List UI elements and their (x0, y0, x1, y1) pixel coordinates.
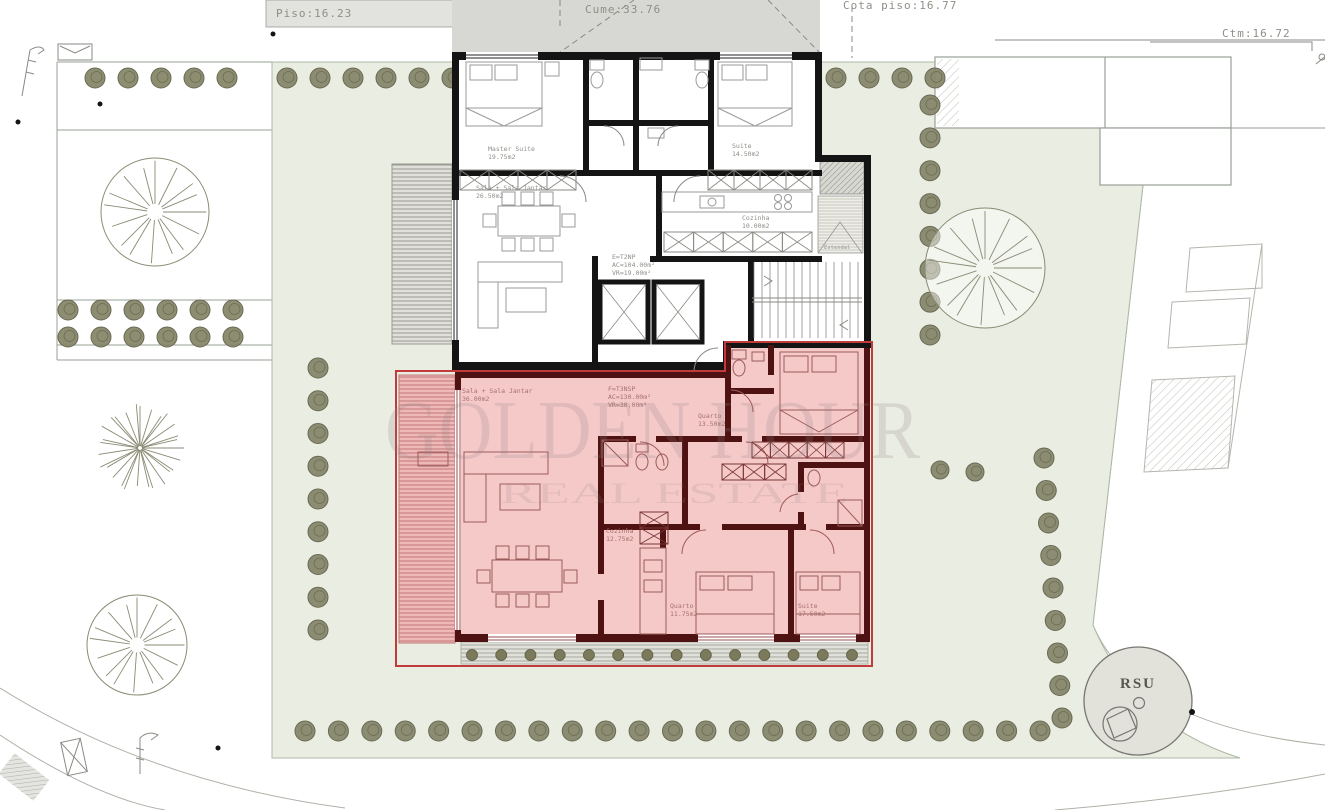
unit-e-vr: VR=19.00m² (612, 269, 651, 277)
tree-icon (920, 95, 940, 115)
tree-icon (308, 620, 328, 640)
tree-icon (429, 721, 449, 741)
watermark-line1: GOLDEN HOUR (385, 384, 920, 477)
site-plan-drawing: Piso:16.23 Cume:33.76 Cota piso:16.77 Ct… (0, 0, 1325, 810)
room-cozinha-e-name: Cozinha (742, 214, 769, 222)
room-estendal-name: Estendal (824, 245, 851, 251)
lamp-post-icon (22, 47, 44, 96)
tree-icon (343, 68, 363, 88)
tree-icon (91, 327, 111, 347)
tree-icon (920, 161, 940, 181)
tree-icon (308, 424, 328, 444)
roof-area (266, 0, 852, 58)
room-master-suite-name: Master Suite (488, 145, 535, 153)
tree-icon (830, 721, 850, 741)
tree-icon (124, 327, 144, 347)
large-tree-icon (101, 158, 209, 266)
crosswalk-hatch (0, 753, 49, 801)
tree-icon (295, 721, 315, 741)
tree-icon (308, 587, 328, 607)
parking-structures (1144, 244, 1262, 472)
room-sala-e-name: Sala + Sala Jantar (476, 184, 547, 192)
tree-icon (376, 68, 396, 88)
tree-icon (58, 300, 78, 320)
room-cozinha-f-area: 12.75m2 (606, 535, 633, 543)
tree-icon (629, 721, 649, 741)
tree-icon (763, 721, 783, 741)
tree-icon (892, 68, 912, 88)
tree-icon (1034, 448, 1054, 468)
unit-e-floorplan (392, 52, 871, 372)
tree-icon (930, 721, 950, 741)
tree-icon (190, 327, 210, 347)
tree-icon (925, 68, 945, 88)
tree-icon (308, 358, 328, 378)
tree-icon (85, 68, 105, 88)
tree-icon (217, 68, 237, 88)
tree-icon (157, 327, 177, 347)
tree-icon (663, 721, 683, 741)
unit-e-ac: AC=104.00m² (612, 261, 655, 269)
tree-icon (151, 68, 171, 88)
room-suite-name: Suite (732, 142, 752, 150)
tree-icon (596, 721, 616, 741)
tree-icon (796, 721, 816, 741)
tree-icon (223, 327, 243, 347)
tree-icon (931, 461, 949, 479)
tree-icon (308, 522, 328, 542)
tree-icon (223, 300, 243, 320)
tree-icon (58, 327, 78, 347)
tree-icon (308, 489, 328, 509)
tree-icon (462, 721, 482, 741)
tree-icon (409, 68, 429, 88)
tree-icon (118, 68, 138, 88)
tree-icon (277, 68, 297, 88)
tree-icon (310, 68, 330, 88)
tree-icon (729, 721, 749, 741)
tree-icon (859, 68, 879, 88)
room-master-suite-area: 19.75m2 (488, 153, 515, 161)
tree-icon (1052, 708, 1072, 728)
tree-icon (190, 300, 210, 320)
tree-icon (308, 456, 328, 476)
tree-icon (863, 721, 883, 741)
tree-icon (1043, 578, 1063, 598)
tree-icon (91, 300, 111, 320)
tree-icon (1045, 611, 1065, 631)
tree-icon (696, 721, 716, 741)
watermark-line2: REAL ESTATE (500, 477, 848, 510)
tree-icon (184, 68, 204, 88)
tree-icon (997, 721, 1017, 741)
tree-icon (1030, 721, 1050, 741)
room-suite-f-name: Suite (798, 602, 818, 610)
tree-icon (124, 300, 144, 320)
label-cota-piso: Cota piso:16.77 (843, 0, 957, 12)
mailbox-icon (58, 44, 92, 60)
tree-icon (395, 721, 415, 741)
tree-icon (920, 325, 940, 345)
large-tree-icon (98, 404, 184, 489)
room-sala-e-area: 26.50m2 (476, 192, 503, 200)
label-cume: Cume:33.76 (585, 3, 661, 16)
tree-icon (896, 721, 916, 741)
room-quarto2-name: Quarto (670, 602, 694, 610)
tree-icon (308, 555, 328, 575)
room-cozinha-e-area: 10.00m2 (742, 222, 769, 230)
tree-icon (328, 721, 348, 741)
room-quarto2-area: 11.75m2 (670, 610, 697, 618)
label-ctm: Ctm:16.72 (1222, 27, 1291, 40)
tree-icon (1041, 546, 1061, 566)
rsu-label: RSU (1120, 676, 1156, 692)
tree-icon (1048, 643, 1068, 663)
tree-icon (562, 721, 582, 741)
label-piso: Piso:16.23 (276, 7, 352, 20)
tree-icon (1036, 481, 1056, 501)
tree-icon (495, 721, 515, 741)
tree-icon (529, 721, 549, 741)
room-suite-f-area: 17.50m2 (798, 610, 825, 618)
tree-icon (362, 721, 382, 741)
unit-e-area[interactable] (459, 60, 864, 362)
tree-icon (920, 194, 940, 214)
tree-icon (157, 300, 177, 320)
lamp-post-icon-2 (136, 733, 158, 774)
large-tree-icon (925, 208, 1045, 328)
room-cozinha-f-name: Cozinha (606, 527, 633, 535)
room-suite-area: 14.50m2 (732, 150, 759, 158)
tree-icon (1050, 676, 1070, 696)
tree-icon (963, 721, 983, 741)
tree-icon (920, 128, 940, 148)
tree-icon (1039, 513, 1059, 533)
site-plan-page: Piso:16.23 Cume:33.76 Cota piso:16.77 Ct… (0, 0, 1325, 810)
tree-icon (966, 463, 984, 481)
large-tree-icon (87, 595, 187, 695)
tree-icon (308, 391, 328, 411)
tree-icon (826, 68, 846, 88)
unit-e-code: E=T2NP (612, 253, 636, 261)
unit-e-balcony (392, 164, 452, 344)
